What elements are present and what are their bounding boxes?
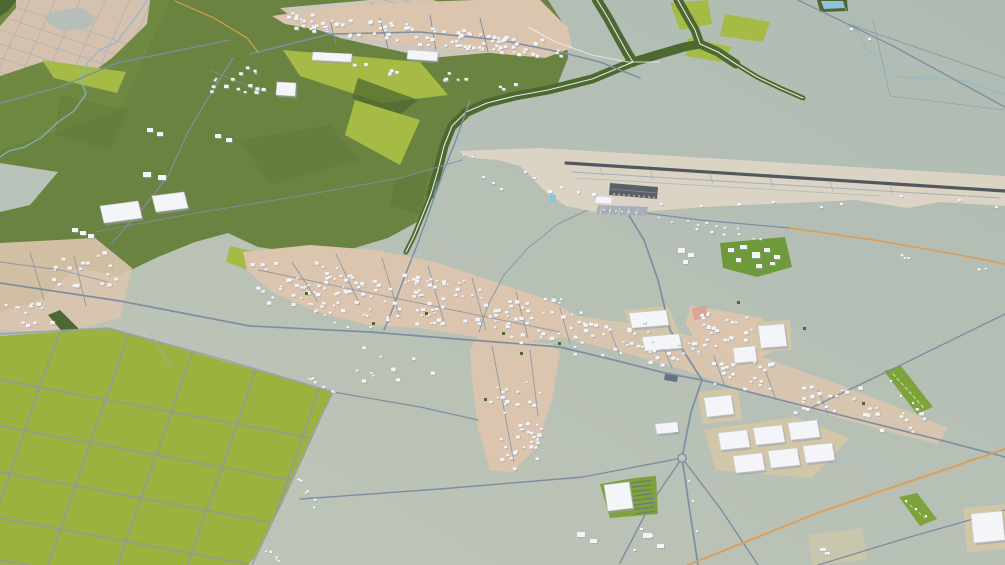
town-buildings — [539, 392, 541, 394]
town-buildings — [763, 369, 766, 371]
town-buildings — [692, 348, 695, 350]
roadside-vehicles — [276, 556, 278, 558]
warehouse — [733, 453, 765, 473]
town-buildings — [342, 286, 344, 288]
town-buildings — [517, 391, 520, 393]
village-north-row — [515, 43, 519, 46]
town-buildings — [516, 403, 520, 406]
hamlet-buildings — [81, 262, 85, 265]
town-buildings — [513, 467, 517, 470]
town-buildings — [552, 298, 556, 301]
village-north-row — [504, 45, 508, 48]
tree — [372, 322, 375, 325]
lake — [821, 1, 845, 9]
town-buildings — [731, 363, 735, 366]
town-buildings — [421, 308, 425, 311]
town-buildings — [323, 287, 326, 289]
town-buildings — [805, 408, 809, 411]
town-buildings — [817, 392, 821, 395]
village-buildings — [750, 329, 753, 331]
town-buildings — [495, 314, 498, 316]
town-buildings — [415, 322, 419, 325]
town-buildings — [530, 317, 533, 319]
scattered-buildings — [431, 372, 435, 375]
scattered-buildings — [412, 357, 415, 359]
hamlet-buildings — [255, 87, 259, 90]
village-north-row — [430, 38, 434, 41]
warehouse — [407, 50, 438, 61]
town-buildings — [530, 432, 533, 435]
parked-car — [615, 211, 617, 212]
village-north-row — [503, 38, 507, 41]
town-buildings — [728, 376, 731, 378]
hamlet-buildings — [215, 78, 217, 80]
town-buildings — [656, 357, 659, 359]
town-buildings — [771, 362, 775, 365]
vehicle — [912, 402, 914, 404]
town-buildings — [336, 302, 339, 304]
map-canvas[interactable] — [0, 0, 1005, 565]
village-buildings — [703, 324, 706, 326]
town-buildings — [534, 446, 537, 448]
tree — [558, 342, 561, 345]
compound-building — [736, 258, 741, 262]
town-buildings — [817, 401, 820, 404]
town-buildings — [481, 297, 483, 299]
hamlet-buildings — [62, 258, 66, 261]
warehouse — [803, 443, 835, 463]
village-north-row — [444, 44, 447, 46]
town-buildings — [714, 383, 717, 385]
town-buildings — [580, 311, 583, 313]
town-buildings — [505, 311, 508, 314]
town-buildings — [863, 413, 867, 416]
airplane — [533, 177, 536, 179]
village-north-row — [469, 33, 472, 35]
vehicle — [688, 480, 690, 482]
town-buildings — [829, 395, 832, 397]
town-buildings — [347, 326, 350, 328]
village-north-row — [455, 40, 458, 42]
village-north-row — [559, 55, 562, 57]
town-buildings — [731, 373, 735, 376]
town-buildings — [360, 282, 364, 285]
town-buildings — [402, 274, 406, 277]
town-buildings — [366, 315, 369, 317]
town-buildings — [404, 282, 406, 284]
village-buildings — [707, 326, 711, 329]
village-north-row — [448, 72, 451, 74]
building-shadow — [636, 213, 638, 214]
small-building — [678, 248, 685, 253]
town-buildings — [393, 302, 397, 305]
warehouse — [718, 430, 750, 450]
small-building — [72, 228, 78, 232]
town-buildings — [324, 314, 326, 316]
town-buildings — [386, 319, 389, 321]
village-buildings — [706, 314, 709, 316]
town-buildings — [525, 381, 527, 383]
small-building — [215, 134, 221, 138]
town-buildings — [396, 315, 399, 317]
town-buildings — [521, 333, 525, 336]
town-buildings — [308, 303, 310, 305]
town-buildings — [521, 307, 524, 309]
town-buildings — [693, 342, 697, 345]
warehouse — [704, 395, 734, 417]
village-north-row — [472, 47, 476, 50]
small-building — [158, 175, 166, 180]
roadside-vehicles — [305, 492, 307, 494]
town-buildings — [373, 280, 377, 283]
town-buildings — [527, 431, 530, 433]
terminal-gate — [648, 196, 650, 198]
small-building — [657, 544, 664, 548]
town-buildings — [660, 348, 662, 350]
town-buildings — [489, 315, 492, 317]
town-buildings — [412, 295, 415, 298]
village-buildings — [746, 316, 749, 318]
village-north-row — [479, 33, 482, 35]
town-buildings — [419, 294, 421, 296]
roadside-vehicles — [331, 390, 334, 392]
town-buildings — [528, 401, 532, 404]
town-buildings — [296, 277, 298, 279]
tree — [484, 398, 487, 401]
village-north-row — [513, 51, 516, 53]
village-north-row — [368, 21, 372, 24]
hamlet-buildings — [237, 88, 240, 90]
hamlet-buildings — [54, 266, 58, 269]
airplane — [548, 190, 552, 193]
town-buildings — [329, 312, 332, 314]
town-buildings — [261, 290, 264, 293]
village-north-row — [353, 64, 357, 67]
town-buildings — [676, 358, 679, 360]
town-buildings — [721, 367, 725, 370]
warehouse — [753, 425, 785, 445]
town-buildings — [300, 297, 302, 299]
village-buildings — [710, 332, 712, 334]
town-buildings — [503, 412, 506, 414]
town-buildings — [261, 263, 265, 266]
town-buildings — [322, 266, 324, 268]
terminal-gate — [628, 194, 630, 196]
town-buildings — [525, 322, 529, 325]
town-buildings — [571, 314, 573, 316]
vehicle — [905, 500, 907, 502]
village-north-row — [364, 63, 368, 66]
town-buildings — [905, 419, 908, 422]
compound-building — [764, 248, 770, 252]
compound-building — [774, 255, 780, 259]
village-north-row — [502, 88, 505, 90]
village-north-row — [535, 43, 538, 45]
town-buildings — [619, 352, 622, 354]
building-shadow — [629, 213, 631, 214]
village-north-row — [478, 46, 481, 48]
town-buildings — [267, 301, 271, 304]
vehicle — [890, 380, 892, 382]
village-north-row — [531, 53, 535, 56]
town-buildings — [810, 386, 814, 389]
village-north-row — [396, 39, 399, 41]
town-buildings — [484, 304, 488, 307]
roadside-vehicles — [658, 217, 660, 219]
airplane — [958, 199, 961, 201]
town-buildings — [769, 388, 772, 390]
building-shadow — [616, 212, 618, 213]
town-buildings — [308, 284, 310, 286]
town-buildings — [759, 384, 762, 386]
airport-pond — [549, 194, 556, 203]
town-buildings — [667, 352, 671, 355]
town-buildings — [750, 381, 752, 383]
town-buildings — [280, 286, 282, 288]
hamlet-buildings — [26, 324, 30, 327]
village-north-row — [462, 29, 466, 32]
town-buildings — [909, 427, 912, 429]
town-buildings — [526, 422, 530, 425]
town-buildings — [613, 348, 617, 351]
vehicle — [850, 28, 853, 30]
town-buildings — [305, 286, 307, 288]
village-north-row — [451, 41, 454, 44]
parked-car — [635, 212, 637, 213]
village-buildings — [715, 345, 718, 347]
tree — [862, 402, 865, 405]
town-buildings — [408, 280, 410, 282]
town-buildings — [325, 277, 328, 280]
village-north-row — [411, 28, 414, 31]
town-buildings — [336, 267, 338, 269]
town-buildings — [836, 395, 839, 397]
hamlet-buildings — [68, 267, 72, 270]
town-buildings — [570, 327, 573, 329]
roadside-vehicles — [753, 238, 755, 240]
town-buildings — [519, 317, 523, 320]
town-buildings — [649, 361, 653, 364]
town-buildings — [334, 293, 337, 295]
roadside-vehicles — [759, 238, 761, 240]
village-north-row — [405, 23, 408, 25]
village-north-row — [457, 79, 460, 81]
village-north-row — [482, 42, 485, 45]
town-buildings — [316, 293, 321, 296]
town-buildings — [497, 309, 501, 312]
village-buildings — [726, 319, 729, 321]
town-buildings — [845, 390, 849, 393]
scattered-buildings — [356, 370, 359, 372]
town-buildings — [712, 362, 716, 365]
airplane — [737, 203, 741, 206]
town-buildings — [802, 387, 806, 390]
village-north-row — [493, 48, 496, 50]
town-buildings — [506, 454, 509, 456]
town-buildings — [505, 400, 509, 403]
hamlet-buildings — [58, 283, 61, 286]
airplane — [700, 205, 703, 207]
town-buildings — [463, 320, 467, 323]
town-buildings — [671, 357, 675, 360]
town-buildings — [429, 278, 432, 280]
town-buildings — [537, 434, 541, 437]
hamlet-buildings — [107, 273, 110, 275]
town-buildings — [341, 309, 345, 312]
terminal-gate — [618, 194, 620, 196]
village-north-row — [557, 50, 560, 52]
warehouse — [629, 310, 669, 328]
town-buildings — [334, 322, 336, 324]
building-shadow — [622, 212, 624, 213]
village-north-row — [349, 19, 353, 22]
town-buildings — [803, 407, 806, 409]
hamlet-buildings — [231, 78, 235, 81]
town-buildings — [876, 413, 880, 416]
town-buildings — [574, 346, 577, 348]
hamlet-buildings — [107, 283, 111, 286]
terminal-gate — [638, 195, 640, 197]
roadside-vehicles — [978, 268, 981, 270]
town-buildings — [520, 428, 523, 430]
hamlet-buildings — [41, 307, 43, 309]
village-north-row — [512, 46, 515, 49]
airplane — [524, 171, 527, 173]
airplane — [660, 203, 663, 205]
vehicle — [696, 530, 698, 532]
town-buildings — [347, 275, 350, 277]
village-north-row — [427, 44, 430, 46]
village-north-row — [431, 27, 435, 30]
village-north-row — [341, 23, 345, 26]
town-buildings — [923, 418, 926, 420]
village-buildings — [723, 339, 726, 341]
vehicle — [482, 176, 485, 178]
terminal-gate — [653, 196, 655, 198]
roadside-vehicles — [687, 220, 689, 222]
roadside-vehicles — [314, 381, 317, 383]
town-buildings — [911, 431, 914, 433]
roadside-vehicles — [308, 378, 310, 380]
small-building — [147, 128, 153, 132]
village-buildings — [711, 327, 715, 330]
roundabout — [678, 454, 686, 462]
town-buildings — [441, 306, 445, 309]
compound-building — [770, 262, 775, 265]
town-buildings — [529, 445, 533, 448]
town-buildings — [324, 281, 328, 284]
small-building — [157, 132, 163, 136]
village-north-row — [378, 20, 381, 22]
town-buildings — [471, 294, 473, 296]
town-buildings — [688, 343, 690, 345]
village-north-row — [373, 33, 376, 35]
town-buildings — [463, 280, 465, 282]
town-buildings — [314, 291, 316, 293]
town-buildings — [315, 310, 318, 312]
town-buildings — [867, 415, 870, 417]
warehouse — [788, 420, 820, 440]
hamlet-buildings — [31, 303, 34, 305]
scattered-buildings — [396, 378, 400, 381]
village-north-row — [455, 44, 459, 47]
village-north-row — [294, 27, 298, 30]
small-building — [688, 253, 694, 257]
town-buildings — [825, 406, 828, 409]
airplane — [840, 203, 843, 205]
town-buildings — [802, 397, 806, 400]
town-buildings — [753, 377, 756, 379]
village-north-row — [357, 33, 361, 36]
town-buildings — [386, 316, 389, 318]
hamlet-buildings — [210, 90, 213, 93]
compound-building — [740, 245, 747, 249]
village-north-row — [390, 69, 394, 72]
town-buildings — [322, 302, 325, 305]
hamlet-buildings — [33, 322, 36, 325]
roadside-vehicles — [724, 227, 726, 229]
roadside-vehicles — [671, 221, 673, 223]
town-buildings — [561, 315, 565, 318]
terminal-gate — [613, 193, 615, 195]
town-buildings — [532, 436, 535, 438]
small-building — [80, 231, 86, 235]
town-buildings — [794, 411, 798, 414]
town-buildings — [355, 282, 359, 285]
vehicle — [650, 535, 653, 537]
village-buildings — [703, 344, 707, 347]
village-north-row — [457, 31, 461, 34]
village-north-row — [323, 26, 326, 28]
village-north-row — [383, 26, 387, 29]
village-north-row — [464, 78, 468, 81]
town-buildings — [560, 298, 562, 300]
town-buildings — [810, 395, 814, 398]
town-buildings — [604, 326, 608, 329]
town-buildings — [633, 333, 636, 335]
airplane — [472, 156, 474, 158]
town-buildings — [509, 305, 513, 308]
town-buildings — [760, 380, 763, 383]
roadside-vehicles — [269, 551, 272, 553]
small-building — [577, 532, 585, 537]
town-buildings — [594, 324, 598, 327]
town-buildings — [344, 279, 347, 281]
village-buildings — [729, 336, 733, 339]
warehouse — [768, 448, 800, 468]
town-buildings — [722, 372, 726, 375]
town-buildings — [458, 282, 460, 284]
town-buildings — [536, 441, 539, 444]
town-buildings — [369, 309, 371, 311]
terminal-front-building — [595, 196, 612, 204]
village-north-row — [309, 28, 312, 30]
town-buildings — [414, 291, 418, 294]
town-buildings — [505, 388, 508, 390]
village-north-row — [315, 25, 318, 27]
compound-building — [728, 248, 734, 252]
town-buildings — [508, 300, 512, 303]
town-buildings — [355, 301, 359, 304]
town-buildings — [265, 268, 268, 270]
hamlet-buildings — [22, 322, 25, 324]
compound-building — [752, 252, 760, 258]
town-buildings — [442, 283, 445, 285]
village-north-row — [302, 25, 305, 28]
village-north-row — [514, 83, 518, 86]
town-buildings — [551, 311, 554, 313]
tree — [425, 312, 428, 315]
